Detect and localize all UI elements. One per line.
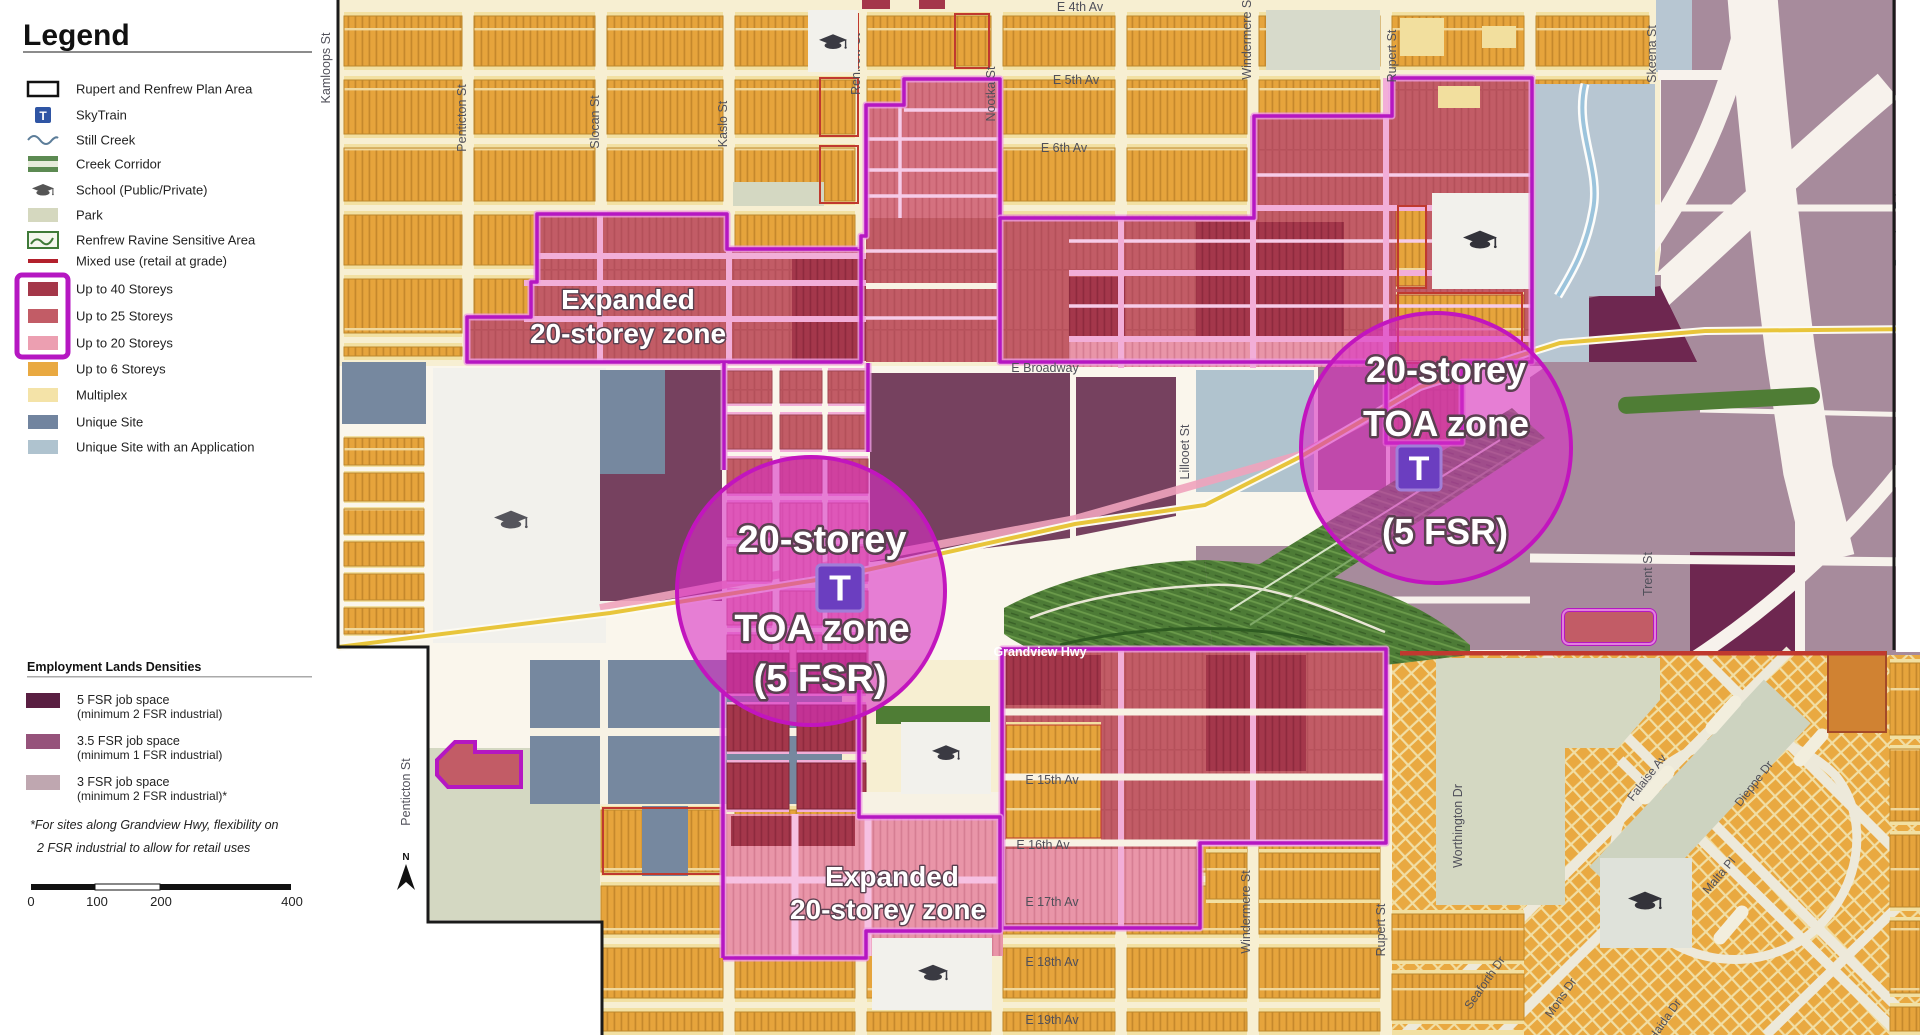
- svg-text:3 FSR job space: 3 FSR job space: [77, 775, 169, 789]
- svg-text:Still Creek: Still Creek: [76, 133, 136, 148]
- svg-text:Unique Site: Unique Site: [76, 415, 143, 430]
- svg-text:Lillooet St: Lillooet St: [1178, 424, 1192, 479]
- svg-text:Trent St: Trent St: [1641, 551, 1655, 596]
- svg-text:Legend: Legend: [23, 19, 130, 52]
- svg-text:Grandview Hwy: Grandview Hwy: [993, 645, 1086, 659]
- svg-text:T: T: [829, 569, 851, 609]
- svg-text:Kaslo St: Kaslo St: [716, 100, 730, 147]
- svg-text:Windermere St: Windermere St: [1240, 0, 1254, 80]
- svg-text:20-storey: 20-storey: [738, 519, 907, 561]
- svg-text:(minimum 2 FSR industrial): (minimum 2 FSR industrial): [77, 707, 222, 721]
- svg-text:E Broadway: E Broadway: [1011, 361, 1079, 375]
- svg-text:Up to 40 Storeys: Up to 40 Storeys: [76, 282, 173, 297]
- svg-text:2 FSR industrial to allow for: 2 FSR industrial to allow for retail use…: [36, 841, 250, 855]
- svg-text:Renfrew Ravine Sensitive Area: Renfrew Ravine Sensitive Area: [76, 233, 256, 248]
- svg-text:Creek Corridor: Creek Corridor: [76, 157, 162, 172]
- svg-text:E 15th Av: E 15th Av: [1025, 773, 1079, 787]
- svg-text:E 5th Av: E 5th Av: [1053, 73, 1100, 87]
- svg-text:School (Public/Private): School (Public/Private): [76, 183, 208, 198]
- svg-text:E 4th Av: E 4th Av: [1057, 0, 1104, 14]
- svg-text:Unique Site with an Applicatio: Unique Site with an Application: [76, 440, 255, 455]
- svg-text:Employment Lands Densities: Employment Lands Densities: [27, 660, 201, 674]
- svg-text:E 19th Av: E 19th Av: [1025, 1013, 1079, 1027]
- svg-text:Slocan St: Slocan St: [588, 95, 602, 149]
- svg-text:TOA zone: TOA zone: [734, 608, 909, 650]
- svg-text:Worthington Dr: Worthington Dr: [1451, 784, 1465, 868]
- svg-text:*For sites along Grandview Hwy: *For sites along Grandview Hwy, flexibil…: [30, 818, 279, 832]
- svg-text:E 17th Av: E 17th Av: [1025, 895, 1079, 909]
- svg-text:(5 FSR): (5 FSR): [754, 658, 887, 700]
- svg-text:E 6th Av: E 6th Av: [1041, 141, 1088, 155]
- svg-text:Mixed use (retail at grade): Mixed use (retail at grade): [76, 254, 227, 269]
- svg-text:T: T: [39, 109, 47, 123]
- svg-text:(5 FSR): (5 FSR): [1382, 511, 1508, 552]
- svg-text:Park: Park: [76, 208, 103, 223]
- svg-text:20-storey zone: 20-storey zone: [790, 894, 986, 925]
- svg-text:E 18th Av: E 18th Av: [1025, 955, 1079, 969]
- svg-text:Up to 25 Storeys: Up to 25 Storeys: [76, 309, 173, 324]
- svg-text:Nootka St: Nootka St: [984, 66, 998, 121]
- svg-text:TOA zone: TOA zone: [1363, 403, 1529, 444]
- svg-text:Expanded: Expanded: [825, 861, 959, 892]
- svg-text:T: T: [1409, 450, 1430, 488]
- svg-text:100: 100: [86, 894, 108, 909]
- svg-text:Kamloops St: Kamloops St: [319, 32, 333, 103]
- svg-text:Up to 20 Storeys: Up to 20 Storeys: [76, 336, 173, 351]
- svg-text:E 16th Av: E 16th Av: [1016, 838, 1070, 852]
- svg-text:Rupert St: Rupert St: [1385, 29, 1399, 82]
- svg-text:Windermere St: Windermere St: [1239, 870, 1253, 954]
- svg-text:(minimum 1 FSR industrial): (minimum 1 FSR industrial): [77, 748, 222, 762]
- svg-text:Penticton St: Penticton St: [455, 84, 469, 152]
- svg-text:20-storey: 20-storey: [1366, 349, 1526, 390]
- svg-text:200: 200: [150, 894, 172, 909]
- svg-text:Skeena St: Skeena St: [1645, 25, 1659, 83]
- svg-text:0: 0: [27, 894, 34, 909]
- svg-text:Multiplex: Multiplex: [76, 388, 128, 403]
- svg-text:3.5 FSR job space: 3.5 FSR job space: [77, 734, 180, 748]
- svg-text:Up to 6 Storeys: Up to 6 Storeys: [76, 362, 166, 377]
- svg-text:N: N: [402, 852, 409, 863]
- svg-text:400: 400: [281, 894, 303, 909]
- svg-text:20-storey zone: 20-storey zone: [530, 318, 726, 349]
- svg-text:Penticton St: Penticton St: [399, 758, 413, 826]
- svg-text:Expanded: Expanded: [561, 284, 695, 315]
- svg-text:5 FSR job space: 5 FSR job space: [77, 693, 169, 707]
- svg-text:SkyTrain: SkyTrain: [76, 108, 127, 123]
- svg-text:Rupert St: Rupert St: [1374, 903, 1388, 956]
- svg-text:Rupert and Renfrew Plan Area: Rupert and Renfrew Plan Area: [76, 82, 253, 97]
- svg-text:(minimum 2 FSR industrial)*: (minimum 2 FSR industrial)*: [77, 789, 227, 803]
